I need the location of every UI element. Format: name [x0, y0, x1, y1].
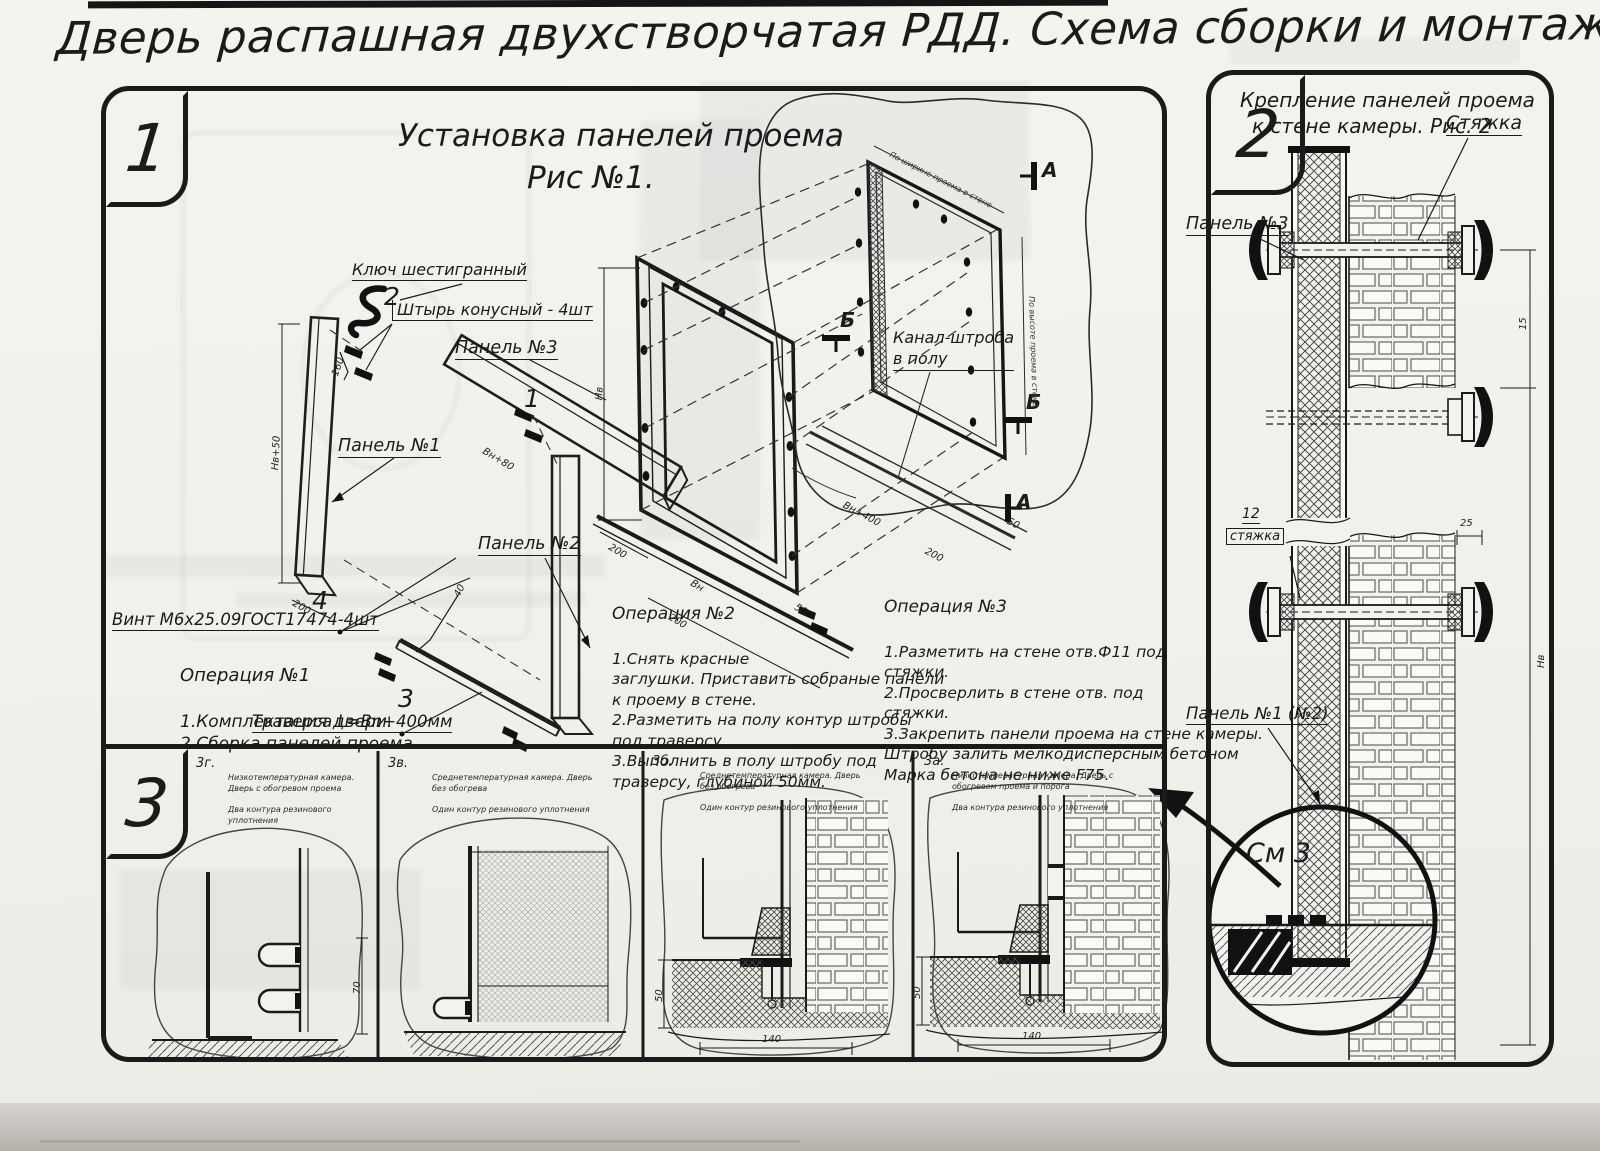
- operation1-steps: 1.Комплектация двери. 2.Сборка панелей п…: [180, 711, 413, 756]
- panel3-label: Панель №3: [455, 338, 558, 360]
- fig3-caption-3b-line1: Среднетемпературная камера. Дверь без об…: [700, 771, 860, 791]
- pos12-number: 12: [1242, 506, 1260, 524]
- operation3-title: Операция №3: [884, 597, 1263, 617]
- fig3-caption-3g-line2: Два контура резинового уплотнения: [228, 805, 332, 825]
- callout-4: 4: [312, 586, 328, 615]
- fig2-panel3-label: Панель №3: [1186, 214, 1289, 236]
- fig3-caption-3a-line2: Два контура резинового уплотнения: [952, 803, 1108, 812]
- fig3-caption-3b: Среднетемпературная камера. Дверь без об…: [700, 760, 875, 814]
- figure1-badge: 1: [106, 91, 188, 207]
- figure3-badge: 3: [106, 749, 188, 859]
- fig3-id-3v: 3в.: [388, 756, 408, 771]
- fig3-caption-3g-line1: Низкотемпературная камера. Дверь с обогр…: [228, 773, 354, 793]
- fig3-caption-3v-line2: Один контур резинового уплотнения: [432, 805, 590, 814]
- channel-label: Канал-штроба в полу: [893, 328, 1014, 371]
- dim-frame-height: Нв: [594, 387, 606, 401]
- callout-1: 1: [524, 384, 540, 413]
- dim-50-3b: 50: [654, 989, 665, 1002]
- dim-panel1-height: Нв+50: [270, 436, 283, 471]
- pos12-name: стяжка: [1226, 528, 1284, 545]
- see-detail-3-label: См 3: [1246, 838, 1311, 869]
- fig3-id-3b: 3б.: [652, 754, 672, 769]
- panel2-label: Панель №2: [478, 534, 581, 556]
- section-marker-a-bottom: А: [1016, 490, 1031, 514]
- hex-key-label: Ключ шестигранный: [352, 260, 527, 281]
- panel1-label: Панель №1: [338, 436, 441, 458]
- dim-70-3g: 70: [352, 981, 363, 994]
- dim-wall-height-fig2: Нв: [1536, 655, 1547, 668]
- figure3-number: 3: [123, 771, 172, 837]
- fig3-id-3g: 3г.: [196, 756, 215, 771]
- fig3-caption-3a: Низкотемпературная камера. Дверь с обогр…: [952, 760, 1157, 814]
- fig2-heading-line1: Крепление панелей проема: [1240, 88, 1535, 112]
- dim-140-3a: 140: [1022, 1031, 1041, 1042]
- fig1-heading: Установка панелей проема: [398, 118, 844, 154]
- fig2-panel1-label: Панель №1 (№2): [1186, 704, 1328, 725]
- figure1-number: 1: [123, 116, 172, 182]
- operation1-title: Операция №1: [180, 665, 413, 686]
- fig3-caption-3v-line1: Среднетемпературная камера. Дверь без об…: [432, 773, 592, 793]
- dim-25: 25: [1460, 518, 1473, 529]
- fig1-heading-fig-no: Рис №1.: [527, 160, 655, 196]
- dim-50-3a: 50: [912, 986, 923, 999]
- panel1-border: [101, 86, 1167, 1062]
- fig3-caption-3b-line2: Один контур резинового уплотнения: [700, 803, 858, 812]
- fig3-caption-3a-line1: Низкотемпературная камера. Дверь с обогр…: [952, 771, 1113, 791]
- fig3-id-3a: 3а.: [924, 754, 944, 769]
- dim-15: 15: [1518, 317, 1529, 330]
- tie-label: Стяжка: [1446, 112, 1522, 136]
- screw-label: Винт М6х25.09ГОСТ17474-4шт: [112, 610, 379, 631]
- fig3-caption-3v: Среднетемпературная камера. Дверь без об…: [432, 762, 597, 816]
- pin-label: Штырь конусный - 4шт: [392, 300, 593, 321]
- scanned-drawing-page: 1 3 2 Дверь распашная двухстворчатая РДД…: [0, 0, 1600, 1151]
- section-marker-b-left: Б: [840, 308, 855, 332]
- dim-140-3b: 140: [762, 1034, 781, 1045]
- section-marker-a-top: А: [1042, 158, 1057, 182]
- fig3-caption-3g: Низкотемпературная камера. Дверь с обогр…: [228, 762, 378, 827]
